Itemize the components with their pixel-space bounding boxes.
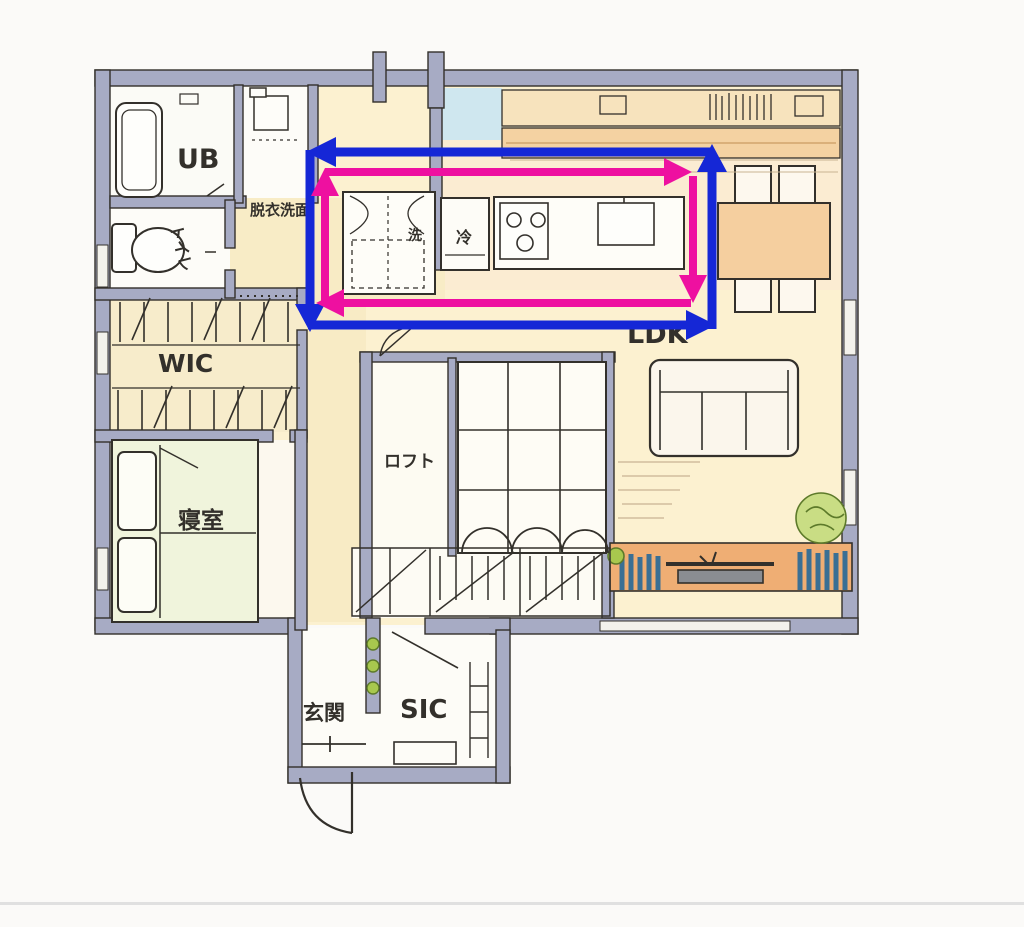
wall-tatami-top bbox=[360, 352, 615, 362]
bottom-divider bbox=[0, 902, 1024, 905]
wall-toilet-bottom bbox=[95, 288, 307, 300]
pillow bbox=[118, 452, 156, 530]
wall-entrance-left bbox=[288, 618, 302, 783]
floor-plan-page: UB トイレ 脱衣洗面 洗 冷 WIC 寝室 ロフト LDK 玄関 SIC bbox=[0, 0, 1024, 927]
wall-niche-right bbox=[428, 52, 444, 108]
wall-entrance-right bbox=[496, 630, 510, 783]
pillow bbox=[118, 538, 156, 612]
window-bottom bbox=[600, 621, 790, 631]
sofa bbox=[650, 360, 798, 456]
label-ub: UB bbox=[177, 144, 220, 175]
bathtub bbox=[116, 103, 162, 197]
label-bedroom: 寝室 bbox=[178, 507, 224, 534]
wall-toilet-right-b bbox=[225, 270, 235, 298]
label-washroom: 脱衣洗面 bbox=[250, 201, 310, 219]
wall-toilet-right-a bbox=[225, 200, 235, 248]
stove-burners bbox=[500, 203, 548, 259]
label-loft: ロフト bbox=[384, 452, 435, 472]
divider-plant bbox=[367, 638, 379, 694]
wall-bedroom-right bbox=[295, 430, 307, 630]
wall-wic-right bbox=[297, 330, 307, 438]
kitchen-tile bbox=[442, 88, 502, 140]
label-entrance: 玄関 bbox=[303, 701, 345, 725]
plant bbox=[796, 493, 846, 543]
window-right-1 bbox=[844, 300, 856, 355]
tv-board bbox=[608, 543, 852, 591]
dining-table bbox=[718, 203, 830, 279]
label-wic: WIC bbox=[158, 349, 213, 378]
entrance-bench bbox=[394, 742, 456, 764]
tatami-grid bbox=[458, 362, 608, 553]
wall-ub-closet bbox=[234, 85, 243, 203]
kitchen-island bbox=[494, 196, 684, 269]
window-left-1 bbox=[97, 245, 108, 287]
floor-plan-svg: UB トイレ 脱衣洗面 洗 冷 WIC 寝室 ロフト LDK 玄関 SIC bbox=[0, 0, 1024, 927]
window-left-3 bbox=[97, 548, 108, 590]
label-washer: 洗 bbox=[408, 227, 422, 244]
wall-niche-left bbox=[373, 52, 386, 102]
wall-loft-left bbox=[360, 352, 372, 618]
kitchen-sink bbox=[598, 196, 654, 245]
wall-top bbox=[95, 70, 857, 86]
label-sic: SIC bbox=[400, 695, 447, 725]
wall-loft-tatami bbox=[448, 358, 456, 556]
window-left-2 bbox=[97, 332, 108, 374]
wall-entrance-bottom bbox=[288, 767, 510, 783]
label-fridge: 冷 bbox=[456, 228, 472, 247]
